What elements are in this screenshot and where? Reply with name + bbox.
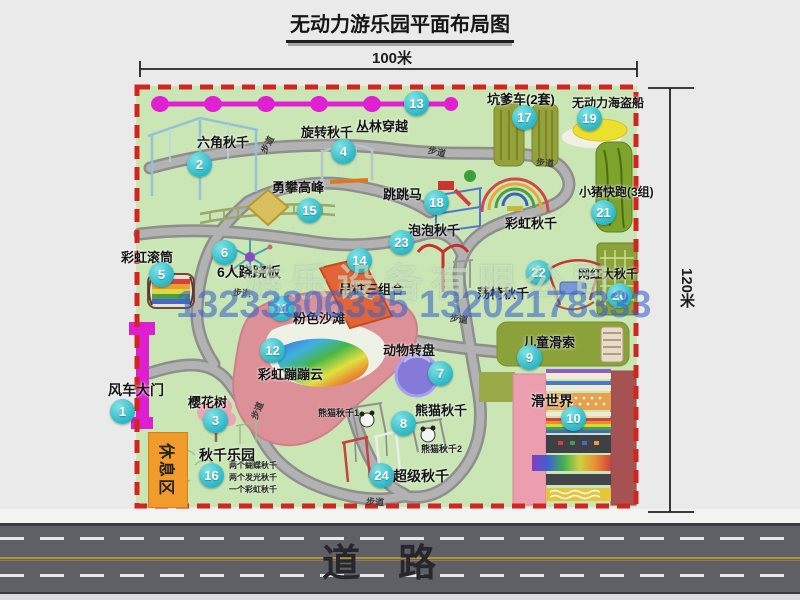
map-scene [0, 0, 800, 600]
badge-panda-swing: 8 [391, 411, 416, 436]
label-panda-swing-1: 熊猫秋千1 [318, 406, 359, 419]
slide-world-structure [513, 369, 636, 505]
label-piggy-run: 小猪快跑(3组) [579, 186, 654, 199]
badge-six-person-seesaw: 6 [212, 240, 237, 265]
label-hexagon-swing: 六角秋千 [197, 136, 249, 150]
badge-kids-zipline: 9 [517, 345, 542, 370]
badge-pirate-ship: 19 [577, 106, 602, 131]
badge-super-swing: 24 [369, 463, 394, 488]
label-animal-carousel: 动物转盘 [383, 344, 435, 358]
rest-area: 休息区 [148, 432, 188, 508]
badge-rotating-swing: 4 [331, 139, 356, 164]
label-rotating-swing: 旋转秋千 [301, 126, 353, 140]
badge-rainbow-roller: 5 [149, 262, 174, 287]
badge-rocking-chair-swing: 22 [526, 260, 551, 285]
badge-peak-climbing: 15 [297, 198, 322, 223]
label-six-person-seesaw: 6人跷跷板 [217, 265, 281, 280]
swing-park-details: 两个蝴蝶秋千 两个发光秋千 一个彩虹秋千 [229, 460, 277, 496]
badge-jumping-horse: 18 [424, 190, 449, 215]
walkway-label-3: 步道 [536, 155, 555, 169]
badge-animal-carousel: 7 [428, 361, 453, 386]
walkway-label-7: 步道 [366, 495, 385, 509]
label-hanging-post-combo: 吊桩三组合 [339, 283, 404, 297]
walkway-label-4: 步道 [233, 285, 252, 299]
label-super-swing: 超级秋千 [393, 469, 449, 484]
badge-big-swing: 20 [607, 283, 632, 308]
badge-bubble-swing: 23 [389, 230, 414, 255]
badge-hanging-post-combo: 14 [347, 248, 372, 273]
label-bubble-swing: 泡泡秋千 [408, 224, 460, 238]
badge-slide-world: 10 [561, 406, 586, 431]
badge-pink-beach: 11 [269, 296, 294, 321]
label-panda-swing-2: 熊猫秋千2 [421, 442, 462, 455]
label-swing-park: 秋千乐园 [199, 448, 255, 463]
badge-jungle-crossing: 13 [404, 91, 429, 116]
walkway-label-5: 步道 [449, 311, 469, 326]
label-big-swing: 网红大秋千 [578, 268, 638, 281]
badge-rainbow-bounce-cloud: 12 [260, 338, 285, 363]
badge-piggy-run: 21 [591, 200, 616, 225]
badge-kengdie-car: 17 [512, 105, 537, 130]
swing-park-detail-2: 两个发光秋千 [229, 472, 277, 484]
label-rocking-chair-swing: 荡椅秋千 [477, 287, 529, 301]
swing-park-detail-3: 一个彩虹秋千 [229, 484, 277, 496]
label-windmill-gate: 风车大门 [108, 383, 164, 398]
rest-area-label: 休息区 [156, 443, 180, 497]
badge-cherry-tree: 3 [203, 408, 228, 433]
label-jumping-horse: 跳跳马 [383, 188, 422, 202]
badge-windmill-gate: 1 [110, 399, 135, 424]
label-peak-climbing: 勇攀高峰 [272, 181, 324, 195]
label-rainbow-bounce-cloud: 彩虹蹦蹦云 [258, 368, 323, 382]
label-cherry-tree: 樱花树 [188, 396, 227, 410]
label-pink-beach: 粉色沙滩 [293, 312, 345, 326]
badge-hexagon-swing: 2 [187, 152, 212, 177]
badge-swing-park: 16 [199, 463, 224, 488]
park-layout-map: 无动力游乐园平面布局图 100米 120米 [0, 0, 800, 600]
label-panda-swing: 熊猫秋千 [415, 404, 467, 418]
label-rainbow-swing: 彩虹秋千 [505, 217, 557, 231]
label-jungle-crossing: 丛林穿越 [356, 120, 408, 134]
